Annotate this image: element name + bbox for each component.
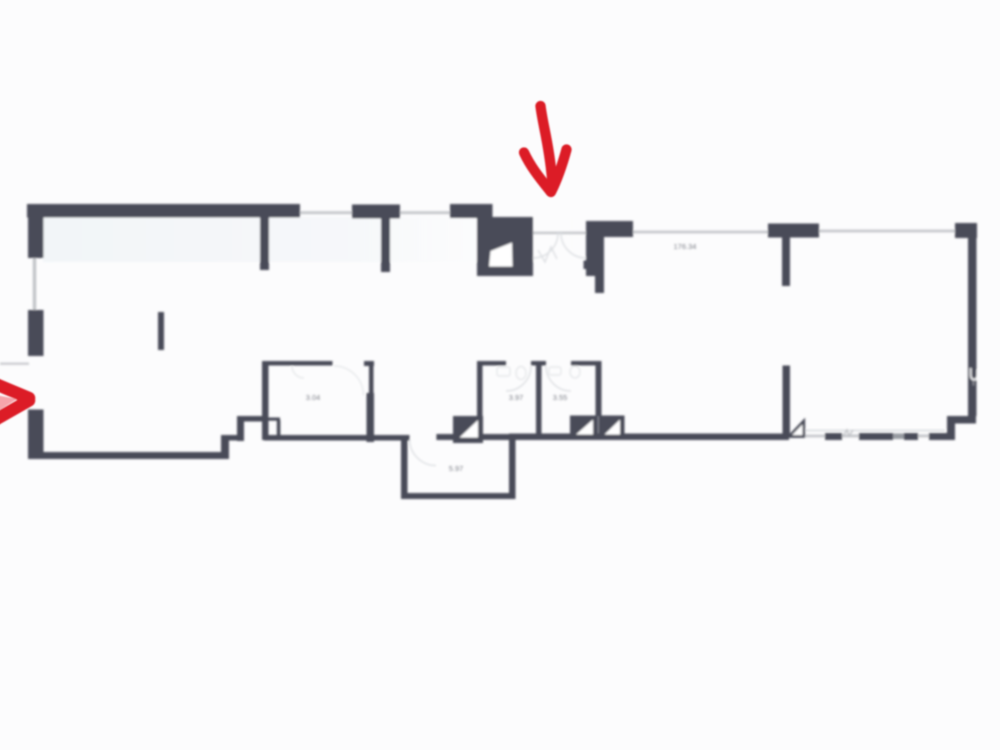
svg-text:3.55: 3.55 [553, 393, 567, 402]
svg-text:3.97: 3.97 [509, 393, 523, 402]
svg-text:5.97: 5.97 [449, 464, 463, 473]
svg-text:3.04: 3.04 [306, 393, 320, 402]
svg-text:176.34: 176.34 [674, 242, 697, 251]
